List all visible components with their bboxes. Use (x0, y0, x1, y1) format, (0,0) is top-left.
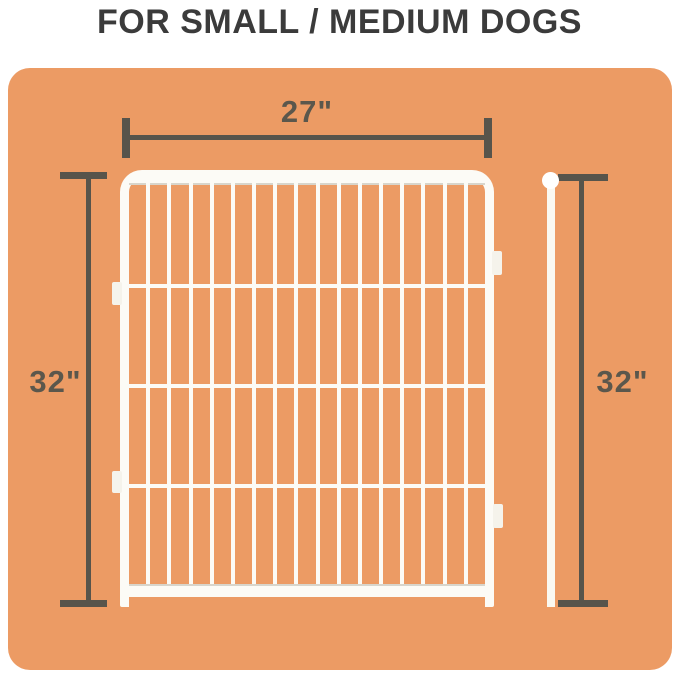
dimension-left-height-endcap-bottom (60, 600, 107, 607)
dimension-top-width-label: 27" (126, 94, 488, 130)
fence-vertical-bar (400, 179, 404, 585)
fence-vertical-bar (231, 179, 235, 585)
fence-horizontal-wire (129, 284, 485, 288)
fence-vertical-bar (167, 179, 171, 585)
fence-vertical-bar (379, 179, 383, 585)
fence-vertical-bar (421, 179, 425, 585)
fence-vertical-bar (337, 179, 341, 585)
connector-pole-rod (547, 180, 555, 607)
fence-vertical-bar (294, 179, 298, 585)
dimension-right-height-line (579, 177, 584, 603)
dimension-right-height-endcap-top (558, 174, 608, 181)
dimension-left-height-line (86, 175, 91, 603)
dimension-left-height-endcap-top (60, 172, 107, 179)
connector-pole-ball-top (542, 172, 559, 189)
page-title: FOR SMALL / MEDIUM DOGS (0, 3, 679, 42)
fence-vertical-bar (146, 179, 150, 585)
fence-vertical-bar (189, 179, 193, 585)
fence-connector-tab-right-lower (493, 504, 503, 528)
fence-vertical-bar (358, 179, 362, 585)
fence-connector-tab-left-lower (112, 471, 122, 493)
dimension-top-width-endcap-right (484, 118, 492, 158)
fence-bottom-bar (129, 584, 485, 597)
dimension-top-width-line (126, 135, 488, 140)
fence-connector-tab-right-upper (492, 251, 502, 275)
fence-vertical-bar (210, 179, 214, 585)
dimension-top-width-endcap-left (122, 118, 130, 158)
dimension-left-height-label: 32" (18, 364, 93, 400)
fence-horizontal-wire (129, 384, 485, 388)
fence-vertical-bar (316, 179, 320, 585)
fence-vertical-bar (252, 179, 256, 585)
fence-connector-tab-left-upper (112, 282, 122, 305)
infographic-canvas: FOR SMALL / MEDIUM DOGS 27" 32" 32" (0, 0, 679, 682)
dimension-right-height-endcap-bottom (558, 600, 608, 607)
fence-horizontal-wire (129, 484, 485, 488)
fence-vertical-bar (464, 179, 468, 585)
fence-vertical-bars (129, 179, 485, 585)
fence-vertical-bar (273, 179, 277, 585)
dimension-right-height-label: 32" (585, 364, 660, 400)
fence-vertical-bar (443, 179, 447, 585)
